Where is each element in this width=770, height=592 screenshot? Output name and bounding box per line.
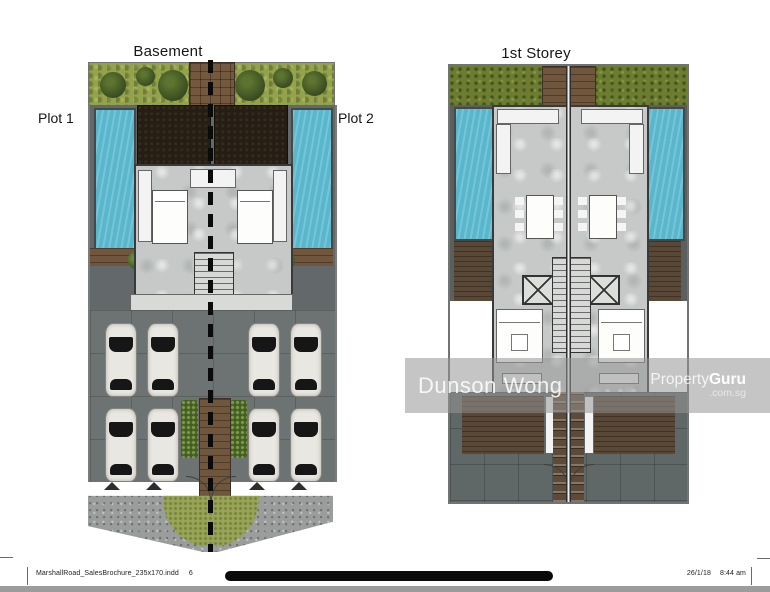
tree: [100, 72, 126, 98]
wardrobe-center: [190, 169, 236, 188]
crop-mark-right: [757, 558, 770, 559]
page-number: 6: [189, 570, 193, 577]
side-deck-right: [289, 248, 333, 266]
dark-planter-left: [137, 105, 211, 167]
watermark-band: Dunson Wong PropertyGuru .com.sg: [405, 358, 770, 413]
car: [248, 408, 280, 482]
tree: [273, 68, 293, 88]
basement-title: Basement: [108, 43, 228, 60]
kitchen-counter-right-side: [629, 124, 644, 174]
first-storey-floor-plan: [448, 64, 689, 504]
logo-guru: Guru: [709, 371, 746, 388]
car: [290, 323, 322, 397]
filename-text: MarshallRoad_SalesBrochure_235x170.indd: [36, 570, 179, 577]
planter-strip-left: [181, 400, 198, 458]
dark-planter-right: [214, 105, 288, 167]
pool-left: [454, 107, 496, 241]
car: [290, 408, 322, 482]
crop-line-right: [751, 567, 752, 585]
side-deck-left: [454, 241, 492, 301]
document-filename: MarshallRoad_SalesBrochure_235x170.indd …: [36, 570, 193, 577]
sofa-left: [496, 309, 543, 363]
print-datetime: 26/1/18 8:44 am: [650, 570, 746, 577]
car: [105, 323, 137, 397]
scan-edge-strip: [0, 586, 770, 592]
tree: [235, 70, 265, 101]
lift-right: [588, 275, 620, 305]
redaction-bar: [225, 571, 553, 581]
crop-mark-left: [0, 557, 13, 558]
car: [248, 323, 280, 397]
dining-chairs: [617, 197, 626, 235]
car: [147, 408, 179, 482]
tree: [158, 70, 188, 101]
driveway-marker: [104, 482, 120, 490]
crop-line-left: [27, 567, 28, 585]
logo-domain: .com.sg: [650, 388, 746, 399]
basement-interior: [134, 164, 293, 314]
kitchen-counter-left: [497, 109, 559, 124]
watermark-agent-name: Dunson Wong: [405, 373, 650, 399]
first-storey-title: 1st Storey: [476, 45, 596, 62]
bathroom-right: [273, 170, 287, 242]
staircase: [552, 257, 591, 353]
planter-strip-right: [230, 400, 247, 458]
car: [147, 323, 179, 397]
propertyguru-logo: PropertyGuru .com.sg: [650, 372, 770, 400]
tree: [136, 67, 155, 86]
sofa-right: [598, 309, 645, 363]
print-date: 26/1/18: [687, 570, 711, 577]
pool-right: [291, 108, 333, 252]
driveway-marker: [291, 482, 307, 490]
dining-table-right: [589, 195, 617, 239]
pool-left: [94, 108, 136, 252]
logo-property: Property: [650, 371, 709, 388]
driveway-marker: [249, 482, 265, 490]
basement-floor-plan: [88, 62, 333, 554]
dining-chairs: [578, 197, 587, 235]
kitchen-counter-right: [581, 109, 643, 124]
party-wall: [566, 66, 571, 502]
plot-boundary-line: [208, 60, 213, 552]
pool-right: [643, 107, 685, 241]
plot1-label: Plot 1: [38, 110, 74, 126]
dining-table-left: [526, 195, 554, 239]
lift-left: [522, 275, 554, 305]
dining-chairs: [554, 197, 563, 235]
plot2-label: Plot 2: [338, 110, 374, 126]
car: [105, 408, 137, 482]
dining-chairs: [515, 197, 524, 235]
print-time: 8:44 am: [720, 570, 746, 577]
bed-left: [152, 190, 188, 244]
bathroom-left: [138, 170, 152, 242]
brochure-page: Basement Plot 1 Plot 2: [0, 0, 770, 592]
kitchen-counter-left-side: [496, 124, 511, 174]
driveway-marker: [146, 482, 162, 490]
tree: [302, 71, 327, 96]
bed-right: [237, 190, 273, 244]
